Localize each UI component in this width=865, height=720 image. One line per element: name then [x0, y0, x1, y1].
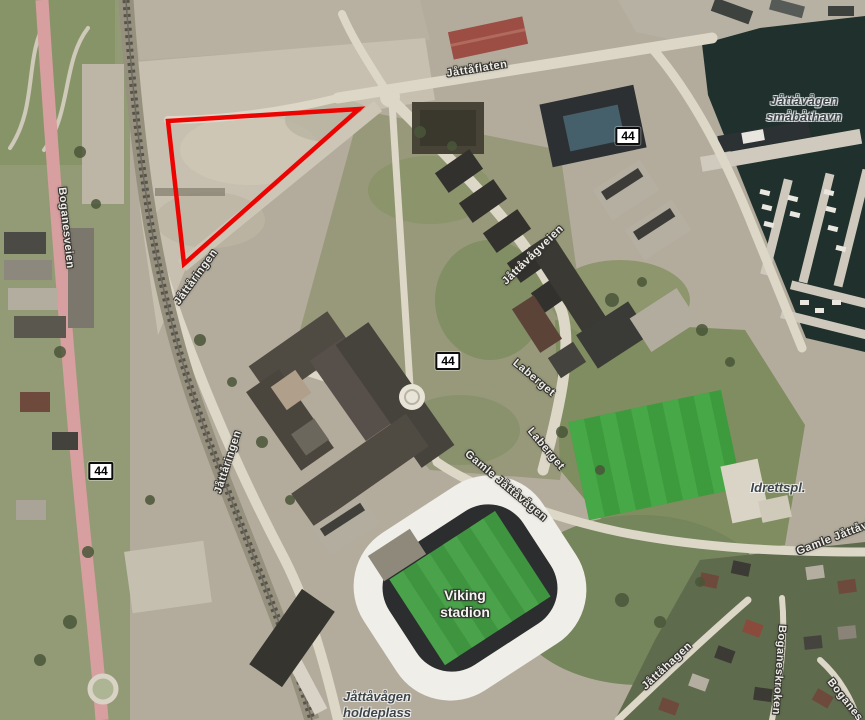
plaza-circle: [399, 384, 425, 410]
road-badge-44: 44: [435, 352, 460, 370]
map-canvas[interactable]: JåttåflatenJåttåvågensmåbåthavnBoganesve…: [0, 0, 865, 720]
roundabout-south: [90, 676, 116, 702]
road-badge-44: 44: [615, 127, 640, 145]
road-badge-44: 44: [88, 462, 113, 480]
aerial-imagery: [0, 0, 865, 720]
